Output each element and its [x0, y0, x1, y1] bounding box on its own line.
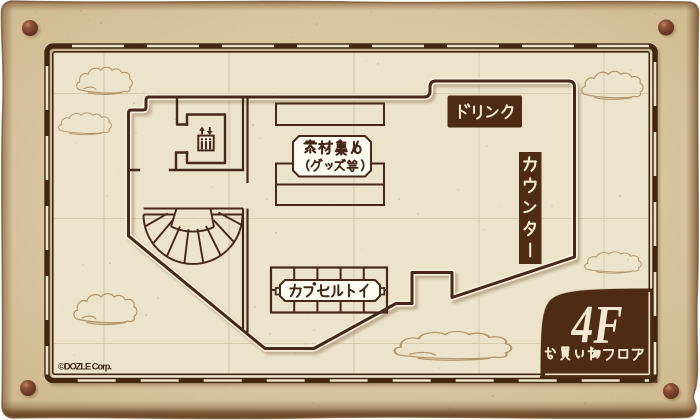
svg-text:4F: 4F	[571, 295, 623, 355]
svg-text:©DOZLE Corp.: ©DOZLE Corp.	[58, 362, 112, 372]
